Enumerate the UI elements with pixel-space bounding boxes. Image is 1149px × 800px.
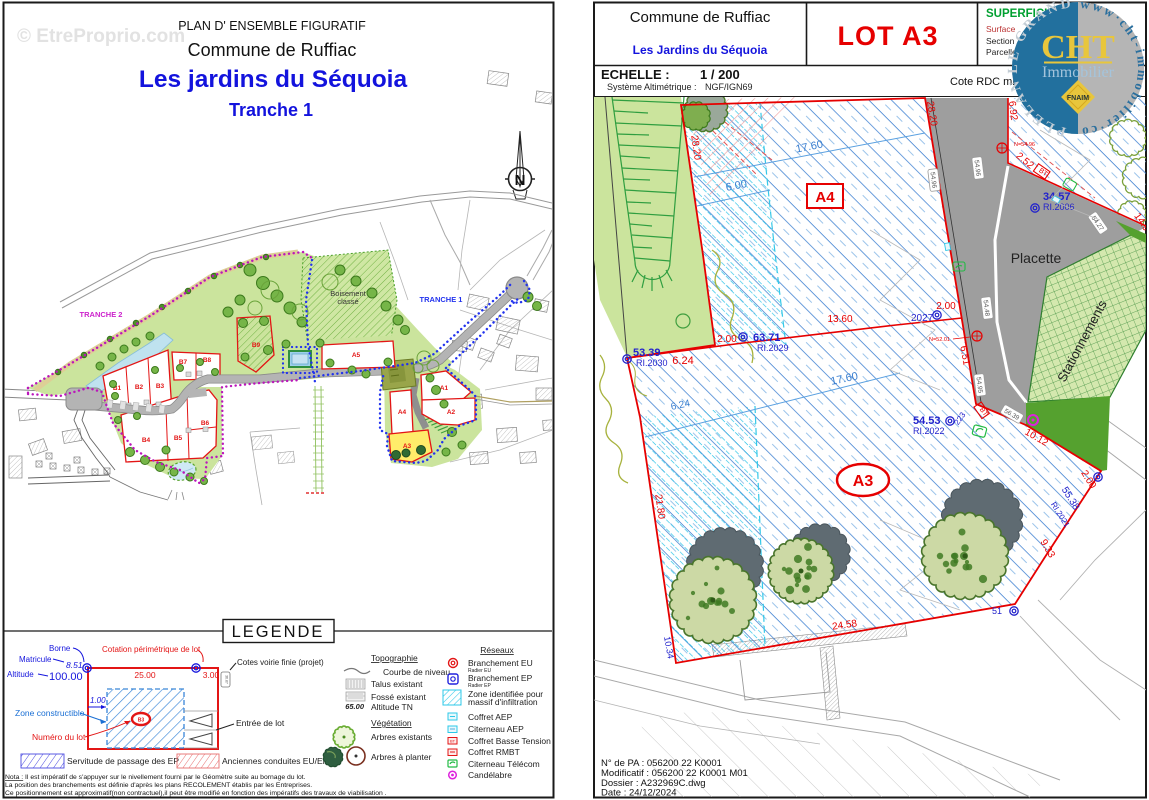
svg-text:massif d'infiltration: massif d'infiltration <box>468 697 538 707</box>
svg-text:RI.2029: RI.2029 <box>757 343 789 353</box>
svg-text:LOT A3: LOT A3 <box>837 21 938 51</box>
svg-text:Candélabre: Candélabre <box>468 770 512 780</box>
svg-text:Entrée de lot: Entrée de lot <box>236 718 285 728</box>
svg-text:Arbres existants: Arbres existants <box>371 732 432 742</box>
svg-text:TRANCHE 2: TRANCHE 2 <box>80 310 123 319</box>
svg-text:A2: A2 <box>447 409 456 416</box>
svg-text:B2: B2 <box>135 384 144 391</box>
svg-text:Végétation: Végétation <box>371 718 412 728</box>
svg-text:A3: A3 <box>853 473 874 490</box>
svg-text:100.00: 100.00 <box>49 671 83 683</box>
svg-text:1 / 200: 1 / 200 <box>700 67 740 82</box>
svg-text:13.60: 13.60 <box>827 314 852 325</box>
svg-text:PLAN D' ENSEMBLE FIGURATIF: PLAN D' ENSEMBLE FIGURATIF <box>178 19 366 33</box>
svg-text:Branchement EP: Branchement EP <box>468 673 533 683</box>
svg-text:Commune de Ruffiac: Commune de Ruffiac <box>188 40 357 60</box>
svg-text:BT: BT <box>450 739 456 744</box>
svg-text:Coffret Basse Tension: Coffret Basse Tension <box>468 736 551 746</box>
svg-text:© EtreProprio.com: © EtreProprio.com <box>17 26 185 47</box>
svg-text:Citerneau AEP: Citerneau AEP <box>468 724 524 734</box>
svg-text:Servitude de passage des EP: Servitude de passage des EP <box>67 756 179 766</box>
svg-text:6.24: 6.24 <box>672 355 693 367</box>
svg-text:36.87: 36.87 <box>225 675 229 684</box>
svg-text:Talus existant: Talus existant <box>371 679 423 689</box>
svg-text:TRANCHE 1: TRANCHE 1 <box>420 295 463 304</box>
svg-text:Coffret RMBT: Coffret RMBT <box>468 747 520 757</box>
svg-text:N=52.01: N=52.01 <box>929 337 950 343</box>
svg-text:B5: B5 <box>174 435 183 442</box>
svg-text:B6: B6 <box>201 420 210 427</box>
svg-text:B3: B3 <box>138 718 145 724</box>
svg-text:Topographie: Topographie <box>371 653 418 663</box>
svg-text:LEGENDE: LEGENDE <box>232 623 325 641</box>
svg-text:Branchement EU: Branchement EU <box>468 658 533 668</box>
svg-text:N=54.96: N=54.96 <box>1014 142 1035 148</box>
svg-text:Tranche 1: Tranche 1 <box>229 100 313 120</box>
svg-text:Cotation périmétrique de lot: Cotation périmétrique de lot <box>102 645 201 654</box>
svg-text:Surface: Surface <box>986 24 1016 34</box>
svg-text:A4: A4 <box>398 409 407 416</box>
svg-text:Ce positionnement est approxim: Ce positionnement est approximatif(non c… <box>5 790 387 797</box>
svg-text:N: N <box>515 172 526 189</box>
svg-text:A1: A1 <box>440 385 449 392</box>
svg-text:RI.2022: RI.2022 <box>913 426 945 436</box>
svg-text:2.00: 2.00 <box>936 301 956 312</box>
svg-text:8.51: 8.51 <box>66 660 83 670</box>
svg-text:Fossé existant: Fossé existant <box>371 692 426 702</box>
svg-text:La position des branchements e: La position des branchements est définie… <box>5 782 312 789</box>
svg-text:Les jardins du Séquoia: Les jardins du Séquoia <box>139 66 408 93</box>
svg-text:ECHELLE :: ECHELLE : <box>601 67 670 82</box>
svg-text:FNAIM: FNAIM <box>1067 95 1089 102</box>
svg-text:CHT: CHT <box>1041 29 1115 66</box>
svg-text:Nota : Il est impératif de s'a: Nota : Il est impératif de s'appuyer sur… <box>5 774 306 781</box>
svg-text:25.00: 25.00 <box>134 670 156 680</box>
svg-text:Courbe de niveau: Courbe de niveau <box>383 667 450 677</box>
svg-text:Réseaux: Réseaux <box>480 645 514 655</box>
svg-text:3.00: 3.00 <box>203 670 220 680</box>
svg-text:65.00: 65.00 <box>345 702 365 711</box>
svg-text:Système Altimétrique :: Système Altimétrique : <box>607 82 697 92</box>
svg-text:A4: A4 <box>815 189 835 206</box>
svg-text:Coffret AEP: Coffret AEP <box>468 712 513 722</box>
svg-text:Borne: Borne <box>49 644 71 653</box>
svg-text:B8: B8 <box>203 357 212 364</box>
svg-text:Immobilier: Immobilier <box>1042 64 1115 81</box>
svg-text:B9: B9 <box>252 342 261 349</box>
svg-text:Zone constructible: Zone constructible <box>15 708 85 718</box>
svg-text:Citerneau Télécom: Citerneau Télécom <box>468 759 540 769</box>
svg-text:A5: A5 <box>352 352 361 359</box>
svg-text:Altitude: Altitude <box>7 670 34 679</box>
svg-text:1.00: 1.00 <box>90 696 106 705</box>
svg-text:Date : 24/12/2024: Date : 24/12/2024 <box>601 788 677 799</box>
svg-text:Cotes voirie finie (projet): Cotes voirie finie (projet) <box>237 658 324 667</box>
svg-text:B4: B4 <box>142 437 151 444</box>
svg-text:51: 51 <box>992 606 1002 616</box>
svg-text:Matricule: Matricule <box>19 655 52 664</box>
svg-text:NGF/IGN69: NGF/IGN69 <box>705 82 753 92</box>
svg-text:Commune de Ruffiac: Commune de Ruffiac <box>630 9 771 26</box>
svg-text:Les Jardins du Séquoia: Les Jardins du Séquoia <box>633 43 768 57</box>
svg-text:2.00: 2.00 <box>717 334 737 345</box>
svg-text:Placette: Placette <box>1011 250 1062 266</box>
svg-text:RI.2030: RI.2030 <box>636 358 668 368</box>
svg-text:Numéro du lot: Numéro du lot <box>32 732 86 742</box>
svg-text:B3: B3 <box>156 383 165 390</box>
svg-text:Altitude TN: Altitude TN <box>371 702 413 712</box>
svg-text:Anciennes conduites EU/EP: Anciennes conduites EU/EP <box>222 756 329 766</box>
svg-text:classé: classé <box>337 297 358 306</box>
svg-text:Arbres à planter: Arbres à planter <box>371 752 432 762</box>
